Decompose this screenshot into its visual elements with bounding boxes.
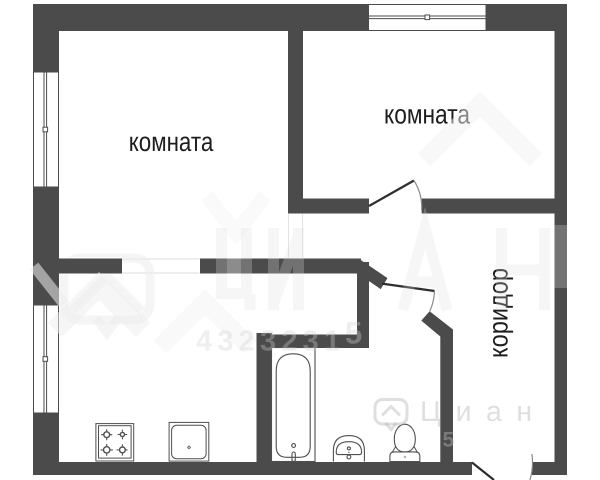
svg-text:5: 5 bbox=[345, 316, 362, 351]
svg-text:Циан: Циан bbox=[420, 396, 547, 428]
svg-text:комната: комната bbox=[129, 127, 214, 157]
svg-text:5: 5 bbox=[443, 429, 455, 452]
svg-text:4323231: 4323231 bbox=[196, 326, 345, 358]
